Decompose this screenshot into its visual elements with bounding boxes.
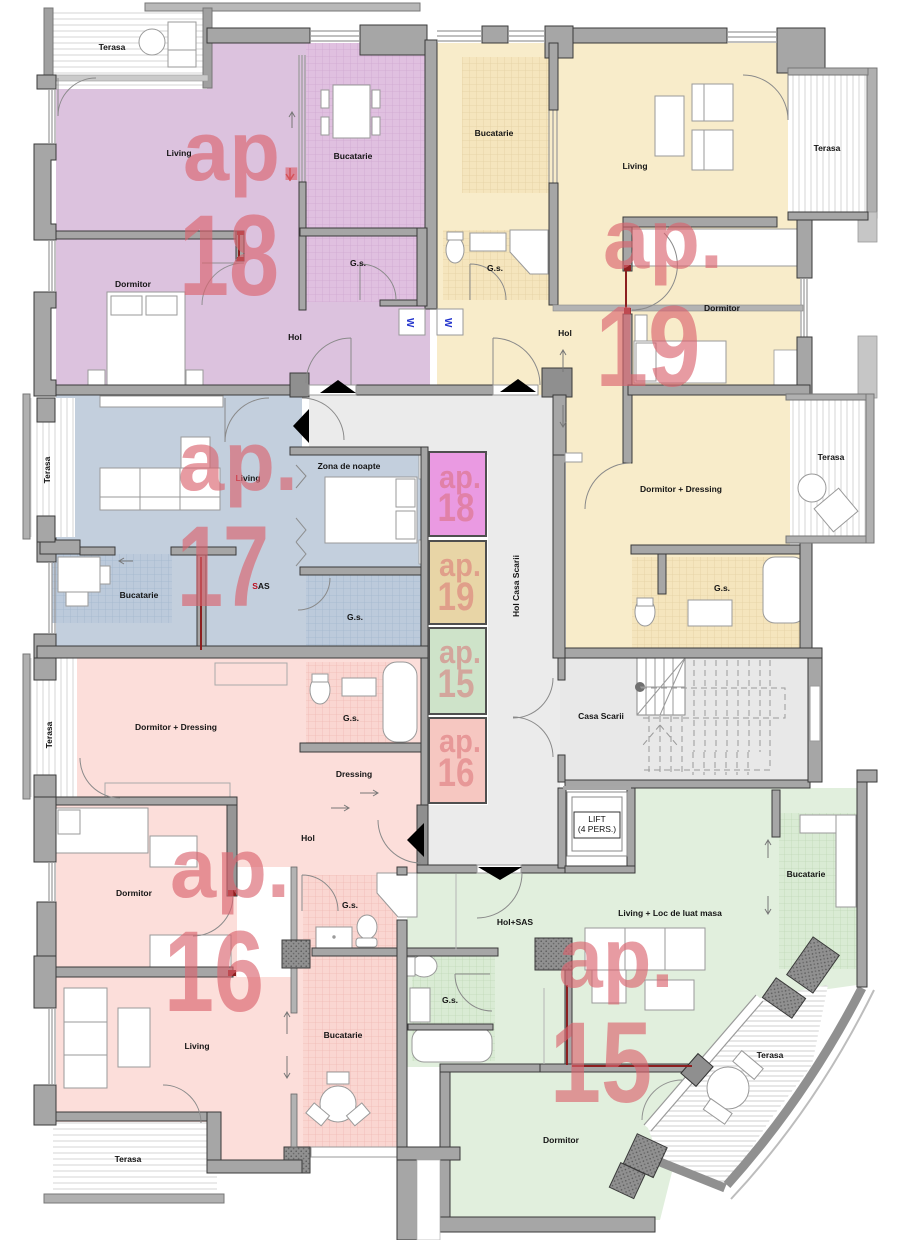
svg-text:Hol: Hol: [301, 833, 315, 843]
svg-text:Dormitor: Dormitor: [543, 1135, 580, 1145]
svg-text:G.s.: G.s.: [342, 900, 358, 910]
svg-text:Zona de noapte: Zona de noapte: [318, 461, 381, 471]
svg-text:Dormitor: Dormitor: [116, 888, 153, 898]
svg-text:Terasa: Terasa: [757, 1050, 784, 1060]
svg-text:Bucatarie: Bucatarie: [334, 151, 373, 161]
svg-text:G.s.: G.s.: [350, 258, 366, 268]
svg-text:Terasa: Terasa: [818, 452, 845, 462]
svg-text:Hol Casa Scarii: Hol Casa Scarii: [511, 555, 521, 617]
svg-text:Dormitor + Dressing: Dormitor + Dressing: [640, 484, 722, 494]
svg-text:G.s.: G.s.: [343, 713, 359, 723]
svg-text:Terasa: Terasa: [814, 143, 841, 153]
svg-text:15: 15: [550, 999, 652, 1127]
svg-text:Living: Living: [184, 1041, 209, 1051]
svg-text:Hol: Hol: [558, 328, 572, 338]
svg-text:G.s.: G.s.: [714, 583, 730, 593]
svg-text:(4 PERS.): (4 PERS.): [578, 824, 616, 834]
svg-text:18: 18: [179, 192, 279, 320]
svg-text:Bucatarie: Bucatarie: [120, 590, 159, 600]
svg-text:16: 16: [438, 751, 475, 795]
svg-text:Dressing: Dressing: [336, 769, 372, 779]
svg-text:18: 18: [438, 486, 475, 530]
svg-text:W: W: [442, 318, 453, 328]
svg-text:19: 19: [438, 575, 475, 619]
svg-text:Bucatarie: Bucatarie: [787, 869, 826, 879]
svg-text:ap.: ap.: [183, 104, 303, 198]
svg-text:LIFT: LIFT: [588, 814, 605, 824]
svg-text:Terasa: Terasa: [42, 456, 52, 483]
svg-text:ap.: ap.: [559, 911, 674, 1005]
svg-text:Terasa: Terasa: [115, 1154, 142, 1164]
svg-text:G.s.: G.s.: [347, 612, 363, 622]
svg-text:Bucatarie: Bucatarie: [475, 128, 514, 138]
svg-text:ap.: ap.: [170, 821, 290, 915]
svg-text:G.s.: G.s.: [487, 263, 503, 273]
svg-text:Dormitor: Dormitor: [704, 303, 741, 313]
svg-text:W: W: [404, 318, 415, 328]
svg-text:15: 15: [438, 662, 475, 706]
svg-text:Casa Scarii: Casa Scarii: [578, 711, 624, 721]
svg-text:Living: Living: [622, 161, 647, 171]
svg-text:Terasa: Terasa: [99, 42, 126, 52]
svg-text:19: 19: [596, 283, 701, 411]
svg-text:Terasa: Terasa: [44, 721, 54, 748]
svg-text:Dormitor + Dressing: Dormitor + Dressing: [135, 722, 217, 732]
svg-text:Hol+SAS: Hol+SAS: [497, 917, 533, 927]
svg-text:Bucatarie: Bucatarie: [324, 1030, 363, 1040]
svg-text:17: 17: [177, 503, 269, 631]
svg-text:G.s.: G.s.: [442, 995, 458, 1005]
svg-text:ap.: ap.: [603, 192, 723, 286]
svg-text:Dormitor: Dormitor: [115, 279, 152, 289]
svg-text:Hol: Hol: [288, 332, 302, 342]
svg-text:16: 16: [164, 908, 264, 1036]
svg-text:ap.: ap.: [178, 414, 298, 508]
